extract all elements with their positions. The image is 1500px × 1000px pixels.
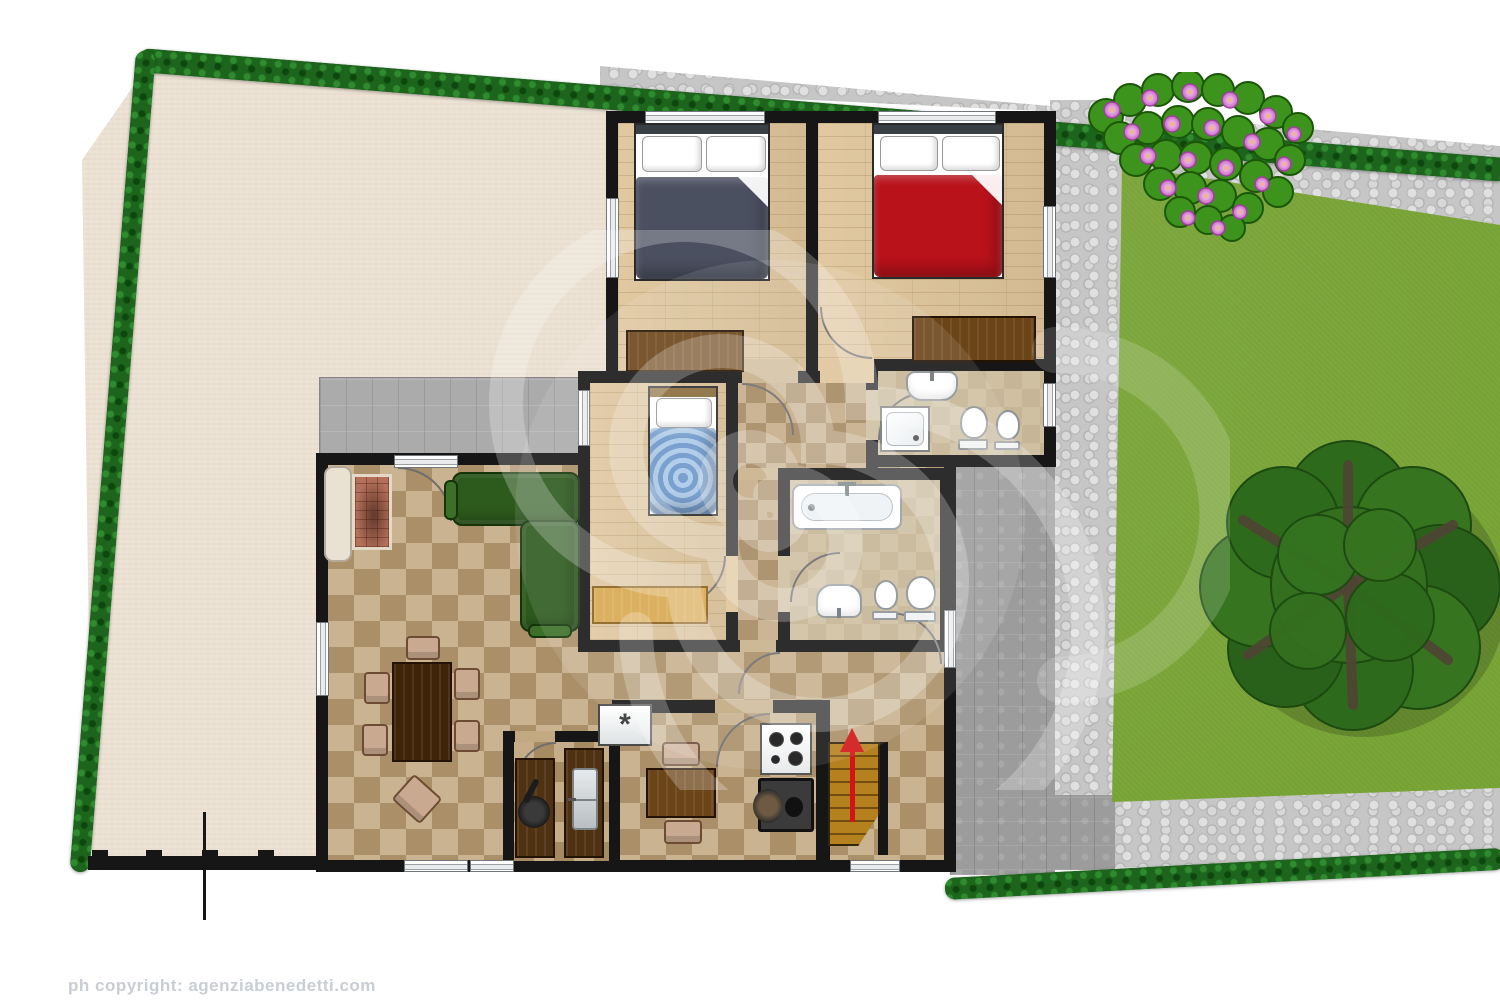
toilet-bathroom-1 xyxy=(958,406,988,450)
corner-sofa-top-arm xyxy=(452,472,580,526)
double-sink xyxy=(572,768,598,830)
fence-post xyxy=(258,850,274,858)
window-bedroom-2-right xyxy=(1043,206,1056,278)
burner xyxy=(788,751,803,766)
terrace xyxy=(320,378,608,458)
gate-mark xyxy=(203,812,206,920)
stairs-arrow-shaft xyxy=(850,750,855,822)
window-bathroom-1-right xyxy=(1043,383,1056,427)
dining-chair xyxy=(406,636,440,660)
window-living-left xyxy=(316,622,329,696)
stove-pot xyxy=(753,789,783,823)
desk-bedroom-3 xyxy=(592,586,708,624)
toilet-bowl xyxy=(906,576,936,610)
burner xyxy=(769,732,784,747)
cream-sofa xyxy=(324,466,352,562)
window-bedroom-1-left xyxy=(606,198,619,278)
bed-pillow xyxy=(706,136,766,172)
bed-duvet-blue xyxy=(650,428,716,514)
corner-sofa-right-arm xyxy=(520,520,580,632)
door-opening-bedroom-2 xyxy=(820,359,874,383)
door-to-patio xyxy=(944,610,956,668)
tap xyxy=(930,371,934,381)
bed-headboard xyxy=(636,125,768,134)
gas-hob xyxy=(760,723,812,775)
dresser-bedroom-2 xyxy=(912,316,1036,362)
dining-chair xyxy=(364,672,390,704)
garden-tree xyxy=(1168,405,1500,765)
toilet-tank xyxy=(904,611,936,622)
door-opening-hall-to-living xyxy=(740,640,776,652)
toilet-bathroom-2 xyxy=(904,576,936,622)
window-living-bottom-1 xyxy=(404,860,468,872)
window-living-bottom-2 xyxy=(470,860,514,872)
fireplace xyxy=(352,474,392,550)
bed-headboard xyxy=(874,125,1002,134)
fence-post xyxy=(146,850,162,858)
appliance-asterisk-symbol: * xyxy=(619,708,631,742)
door-opening-bathroom-2 xyxy=(778,556,790,612)
bed-pillow xyxy=(642,136,702,172)
washbasin-bathroom-2 xyxy=(816,584,862,618)
dining-chair xyxy=(454,720,480,752)
patio-bottom xyxy=(950,795,1115,870)
french-door-terrace xyxy=(394,455,458,468)
corner-sofa-armrest xyxy=(444,480,458,520)
kitchen-table xyxy=(646,768,716,818)
stove-door xyxy=(785,797,803,817)
single-bed-blue xyxy=(648,386,718,516)
flower-bed xyxy=(1072,72,1332,242)
bidet-bowl xyxy=(874,580,898,610)
window-kitchen-bottom xyxy=(850,860,900,872)
fence-post xyxy=(92,850,108,858)
corner-sofa-armrest xyxy=(528,624,572,638)
bed-pillow xyxy=(880,136,938,171)
floorplan-stage: * ph copyright: agenziabenedetti.com xyxy=(0,0,1500,1000)
wardrobe-bedroom-1 xyxy=(626,330,744,372)
door-opening-bedroom-1 xyxy=(742,359,798,383)
toilet-tank xyxy=(958,439,988,450)
bidet-base xyxy=(994,441,1020,450)
bed-pillow xyxy=(942,136,1000,171)
door-opening-bathroom-1 xyxy=(866,390,878,440)
double-bed-gray xyxy=(634,123,770,281)
door-opening-hall-upper xyxy=(738,468,778,480)
bed-headboard xyxy=(650,388,716,397)
bathtub xyxy=(792,484,902,530)
kitchen-chair xyxy=(662,742,700,766)
toilet-bowl xyxy=(960,406,988,439)
copyright-text: ph copyright: agenziabenedetti.com xyxy=(68,976,376,996)
kitchen-appliance: * xyxy=(598,704,652,746)
window-bedroom-3-left xyxy=(578,390,590,446)
shower-bathroom-1 xyxy=(880,406,930,452)
washbasin-bathroom-1 xyxy=(906,371,958,401)
bidet-bowl xyxy=(996,410,1020,440)
wood-stove xyxy=(758,778,814,832)
door-opening-pantry xyxy=(515,731,555,742)
double-bed-red xyxy=(872,123,1004,279)
burner xyxy=(771,755,780,764)
door-opening-bedroom-3 xyxy=(726,556,738,612)
tub-tap-bar xyxy=(838,482,856,486)
bed-duvet-gray xyxy=(636,177,768,279)
door-opening-kitchen xyxy=(715,700,773,713)
kitchen-chair xyxy=(664,820,702,844)
dining-chair xyxy=(362,724,388,756)
flower-bushes xyxy=(1089,72,1313,241)
sink-divider xyxy=(574,799,596,801)
burner xyxy=(790,732,803,745)
dining-table xyxy=(392,662,452,762)
dining-chair xyxy=(454,668,480,700)
bidet-bathroom-2 xyxy=(872,580,898,620)
bidet-bathroom-1 xyxy=(994,410,1020,450)
bidet-base xyxy=(872,611,898,620)
stairs-arrow-head xyxy=(840,728,864,752)
bed-pillow xyxy=(656,398,712,428)
tap xyxy=(837,608,841,618)
bed-duvet-red xyxy=(874,175,1002,277)
sink-tap xyxy=(568,798,576,801)
wall-kitchen-stairs xyxy=(816,703,830,860)
